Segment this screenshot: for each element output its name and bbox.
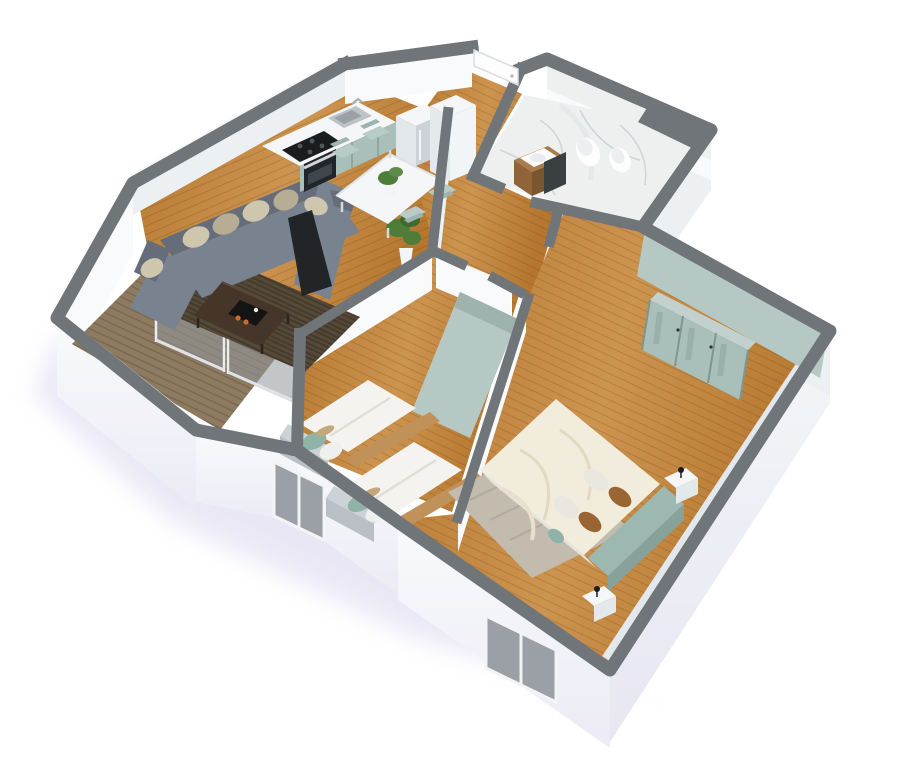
floor-plan-render (0, 0, 900, 757)
floor-plan-stage (0, 0, 900, 757)
